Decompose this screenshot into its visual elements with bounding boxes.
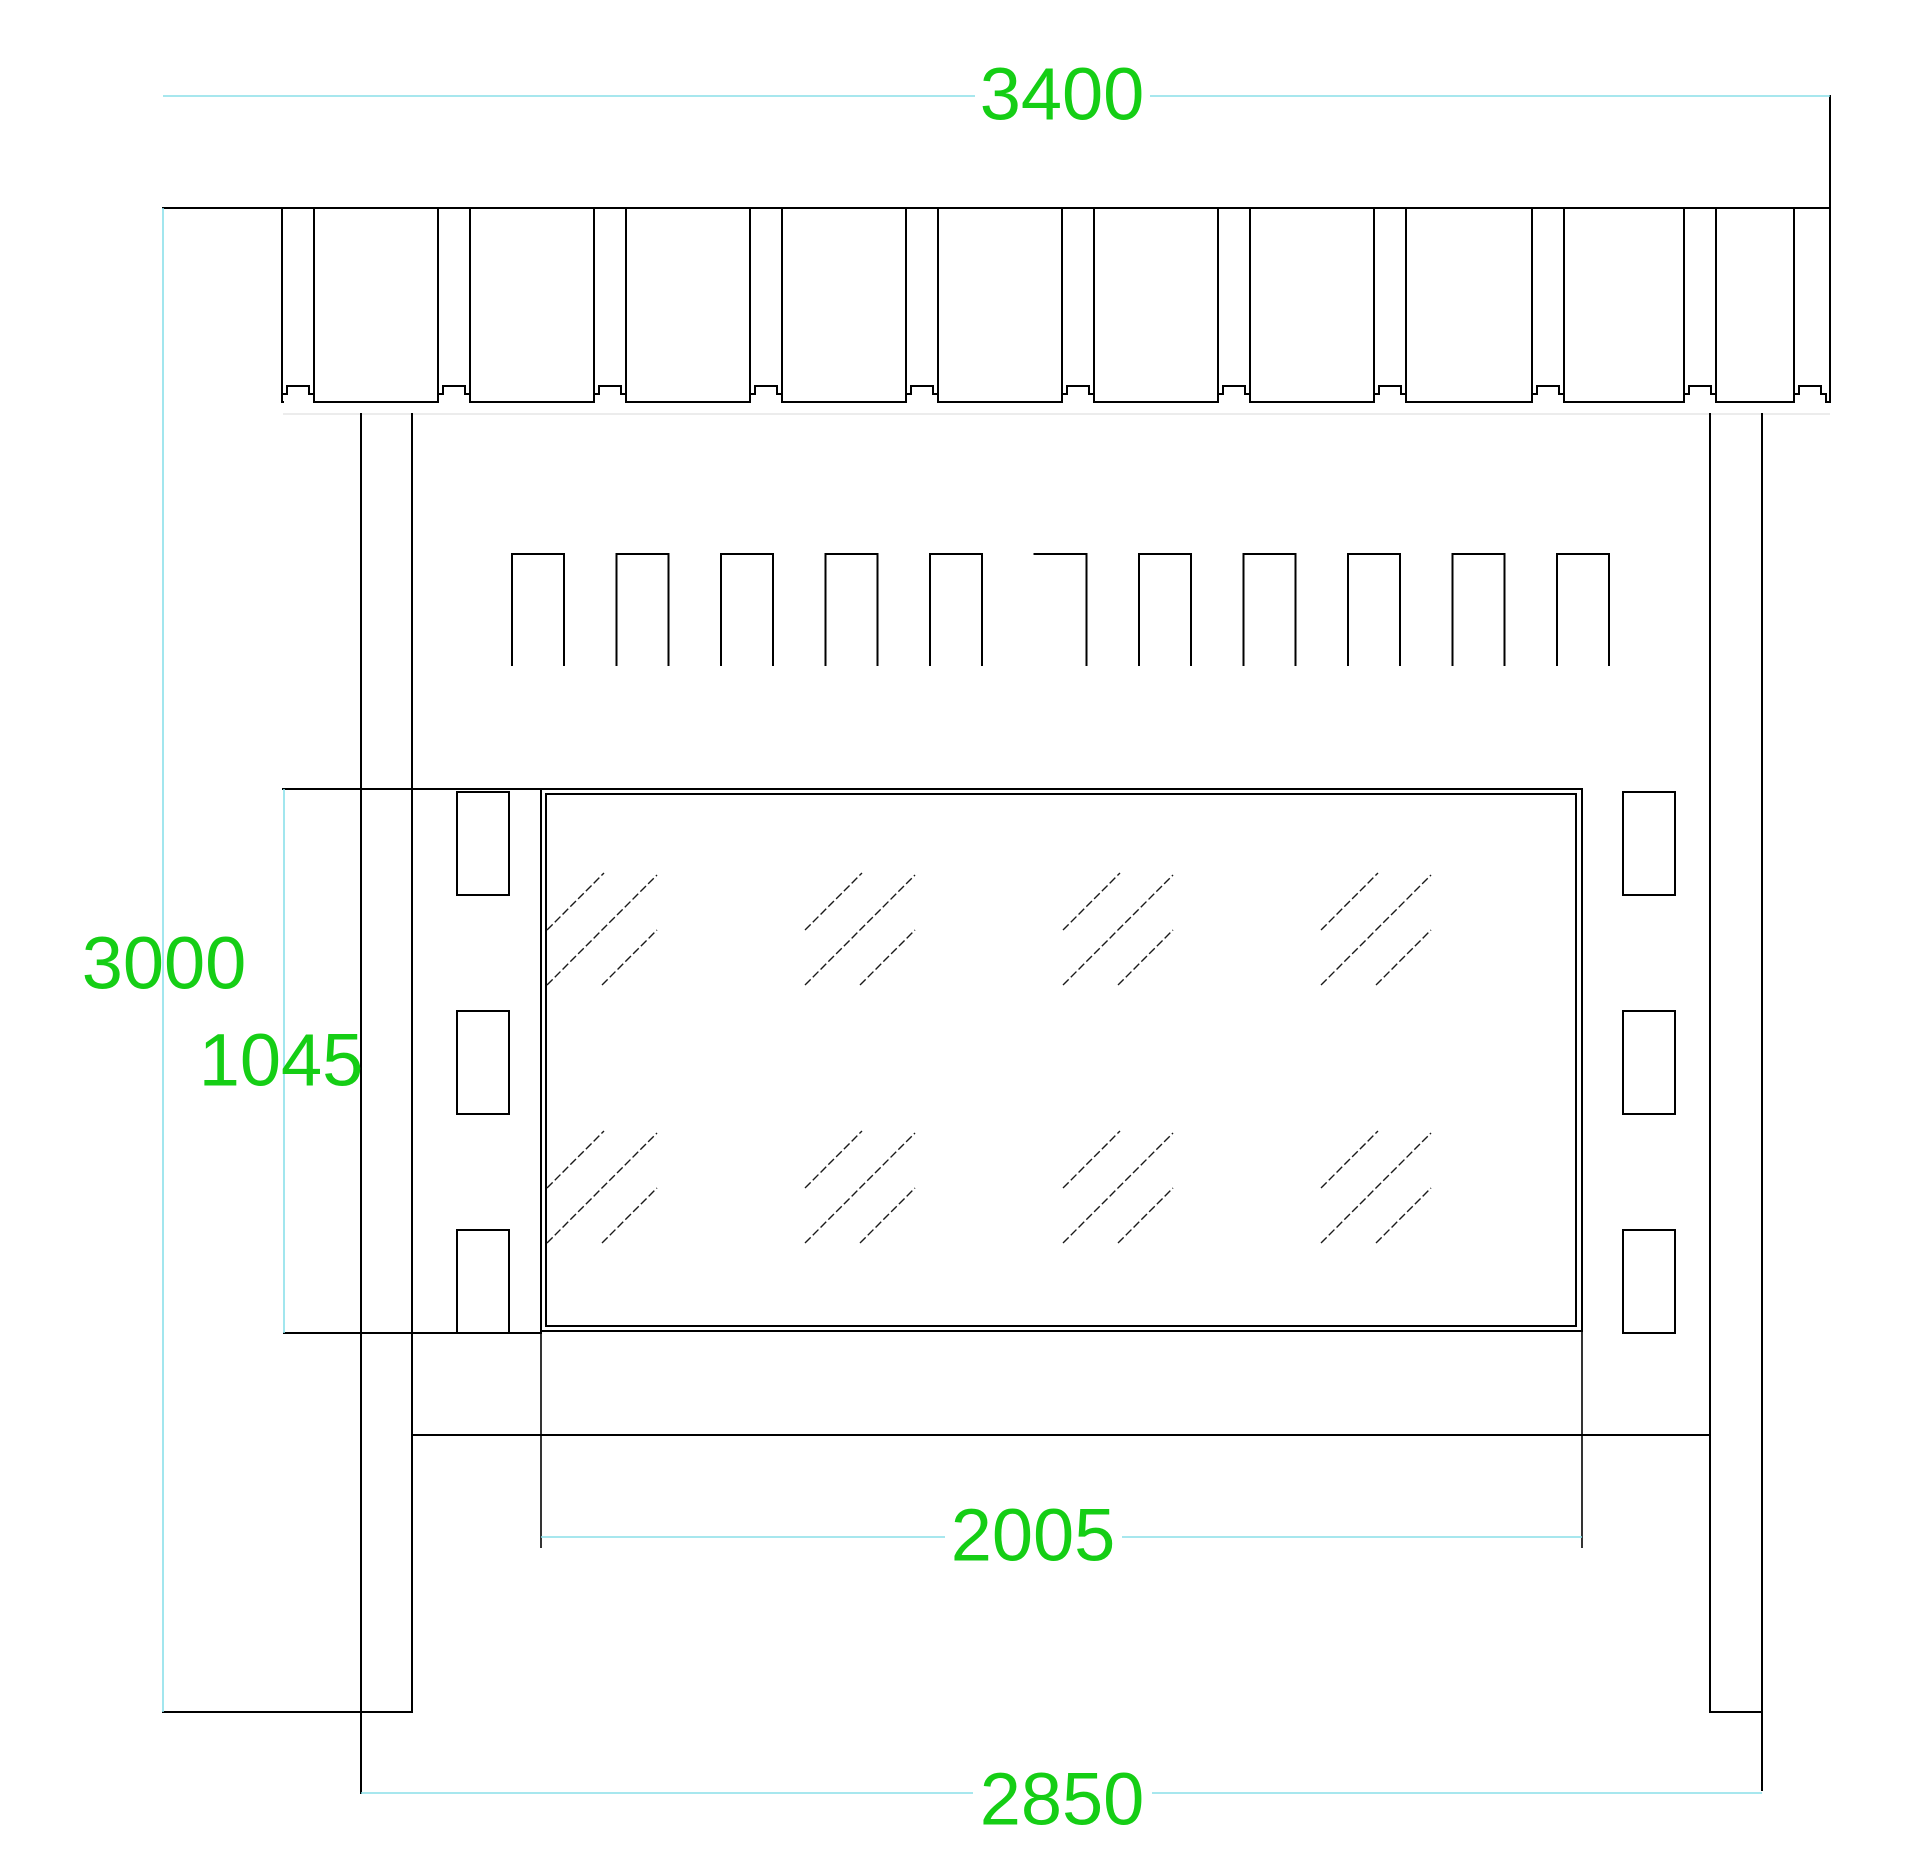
- glass-hatch-stroke: [1118, 1188, 1173, 1243]
- sign-frame: [283, 789, 1710, 1435]
- batten: [826, 554, 878, 665]
- top-rail-profile: [163, 96, 1830, 414]
- glass-hatch-stroke: [1063, 875, 1173, 985]
- glass-hatch-stroke: [1063, 1131, 1120, 1188]
- dimension-label-glass-width: 2005: [951, 1494, 1116, 1577]
- glass-hatch-stroke: [805, 1131, 862, 1188]
- glass-hatch-stroke: [547, 875, 657, 985]
- glass-hatch-stroke: [1063, 1133, 1173, 1243]
- glass-hatch-stroke: [1321, 873, 1378, 930]
- batten: [721, 554, 773, 665]
- glass-hatch-stroke: [602, 930, 657, 985]
- dimension-label-base-span: 2850: [980, 1758, 1145, 1841]
- glass-hatch-stroke: [1321, 875, 1431, 985]
- glass-hatch-stroke: [1321, 1133, 1431, 1243]
- batten: [1453, 554, 1505, 665]
- glass-hatch-stroke: [860, 1188, 915, 1243]
- glass-hatch-stroke: [602, 1188, 657, 1243]
- support-posts: [163, 414, 1762, 1793]
- batten: [1035, 554, 1087, 665]
- glass-hatch-stroke: [1376, 930, 1431, 985]
- batten: [1557, 554, 1609, 665]
- glass-hatch-stroke: [547, 1133, 657, 1243]
- batten: [1348, 554, 1400, 665]
- batten: [617, 554, 669, 665]
- dimension-label-overall-width: 3400: [980, 53, 1145, 136]
- glass-hatch-stroke: [1376, 1188, 1431, 1243]
- glass-frame-inner: [546, 794, 1576, 1326]
- elevation-drawing: 3400 3000 1045 2005 2850: [0, 0, 1920, 1873]
- left-side-block: [457, 1011, 509, 1114]
- glass-hatch-stroke: [1321, 1131, 1378, 1188]
- drawing-canvas: 3400 3000 1045 2005 2850: [0, 0, 1920, 1873]
- top-rail-castellated-edge: [282, 386, 1830, 402]
- glass-hatch-stroke: [805, 875, 915, 985]
- batten: [1139, 554, 1191, 665]
- dimension-label-overall-height: 3000: [82, 922, 247, 1005]
- glass-hatch-stroke: [860, 930, 915, 985]
- glass-hatch-stroke: [1118, 930, 1173, 985]
- right-side-block: [1623, 792, 1675, 895]
- dimension-label-panel-height: 1045: [199, 1019, 364, 1102]
- left-side-block: [457, 1230, 509, 1333]
- right-side-block: [1623, 1230, 1675, 1333]
- glass-hatch-stroke: [547, 1131, 604, 1188]
- glass-frame-outer: [541, 789, 1582, 1331]
- batten: [512, 554, 564, 665]
- left-side-block: [457, 792, 509, 895]
- glass-hatch-stroke: [805, 873, 862, 930]
- glass-hatch-stroke: [805, 1133, 915, 1243]
- glass-hatch-stroke: [1063, 873, 1120, 930]
- glass-hatch: [547, 873, 1431, 1243]
- batten: [930, 554, 982, 665]
- glass-hatch-stroke: [547, 873, 604, 930]
- batten-row: [512, 554, 1609, 665]
- right-side-block: [1623, 1011, 1675, 1114]
- batten: [1244, 554, 1296, 665]
